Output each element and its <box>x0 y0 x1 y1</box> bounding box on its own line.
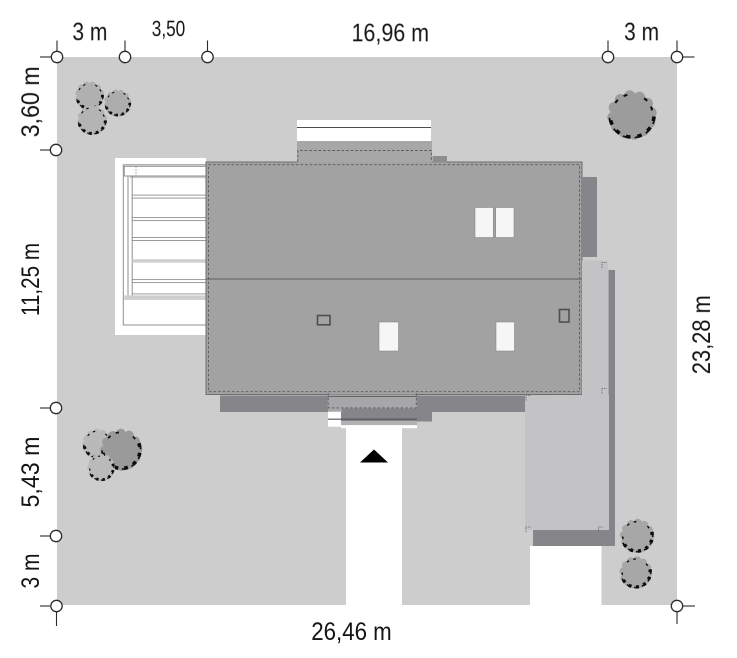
svg-text:3 m: 3 m <box>17 554 45 589</box>
svg-text:3,60 m: 3,60 m <box>17 66 45 137</box>
svg-text:5,43 m: 5,43 m <box>17 437 45 508</box>
svg-text:23,28 m: 23,28 m <box>688 295 716 374</box>
svg-text:26,46 m: 26,46 m <box>311 618 392 646</box>
svg-text:3,50: 3,50 <box>152 16 186 41</box>
svg-text:11,25 m: 11,25 m <box>17 243 45 316</box>
svg-text:3 m: 3 m <box>72 18 107 46</box>
svg-text:16,96 m: 16,96 m <box>352 19 430 47</box>
svg-text:3 m: 3 m <box>624 18 659 46</box>
